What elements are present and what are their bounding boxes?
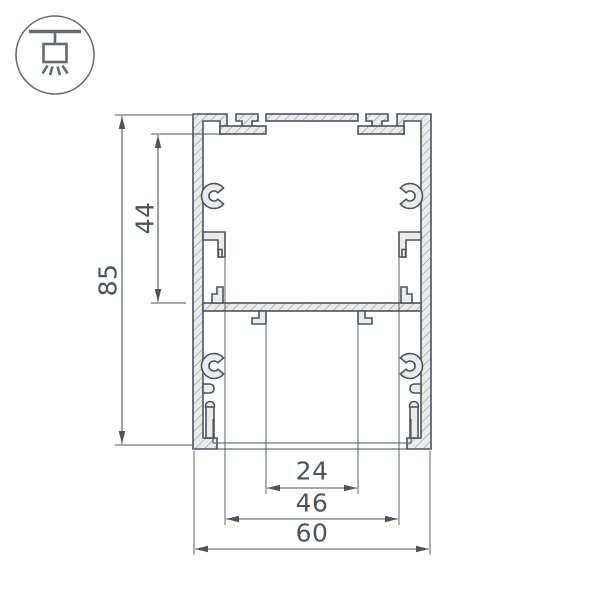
dimension-overall-height: 85 (94, 115, 193, 445)
dimension-slot-width: 24 (266, 312, 358, 494)
profile-right-wall (358, 114, 431, 449)
dim-label-overall-height: 85 (94, 264, 123, 297)
profile-cross-section (193, 114, 431, 449)
profile-technical-drawing: 85 44 24 46 60 (0, 0, 600, 600)
middle-shelf (203, 303, 421, 311)
dim-label-overall-width: 60 (296, 519, 329, 548)
dim-label-cavity-height: 44 (131, 202, 160, 235)
icon-circle (16, 16, 94, 94)
dim-label-slot-width: 24 (296, 457, 329, 486)
top-center-plate (266, 114, 358, 121)
dim-label-opening-width: 46 (296, 489, 329, 518)
diffuser-plate (213, 419, 411, 443)
drawing-canvas: 85 44 24 46 60 (0, 0, 600, 600)
dimension-cavity-height: 44 (131, 134, 222, 303)
lamp-box (44, 44, 67, 62)
light-rays-icon (43, 66, 68, 76)
ceiling-light-icon (16, 16, 94, 94)
profile-left-wall (193, 114, 266, 449)
